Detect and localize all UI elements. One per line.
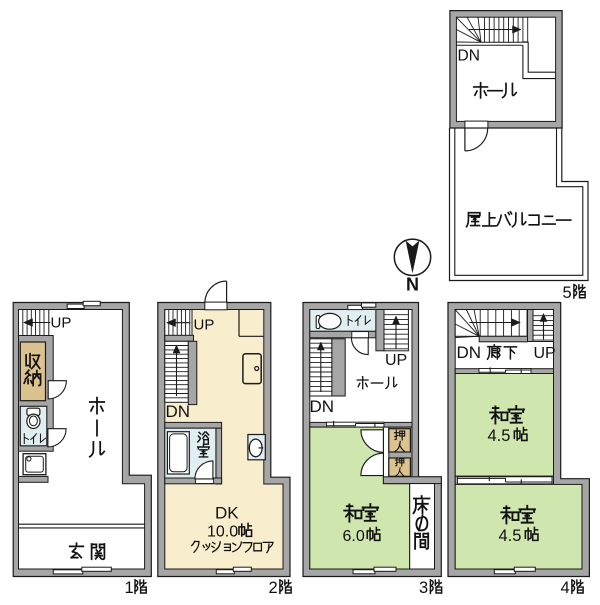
svg-text:DN: DN bbox=[457, 343, 482, 362]
svg-text:DN: DN bbox=[310, 397, 335, 416]
svg-text:4: 4 bbox=[561, 579, 570, 597]
svg-text:5: 5 bbox=[563, 284, 572, 302]
svg-text:10.0: 10.0 bbox=[207, 524, 238, 541]
svg-text:DN: DN bbox=[458, 48, 480, 65]
svg-text:UP: UP bbox=[194, 317, 215, 334]
svg-text:UP: UP bbox=[534, 345, 556, 362]
svg-text:4.5: 4.5 bbox=[499, 527, 522, 545]
svg-text:1: 1 bbox=[125, 579, 134, 597]
svg-text:DK: DK bbox=[215, 504, 239, 523]
svg-text:3: 3 bbox=[419, 579, 428, 597]
svg-text:6.0: 6.0 bbox=[343, 528, 365, 545]
svg-text:UP: UP bbox=[385, 352, 407, 369]
svg-text:N: N bbox=[406, 275, 419, 295]
svg-text:4.5: 4.5 bbox=[488, 427, 511, 445]
svg-text:2: 2 bbox=[269, 579, 278, 597]
svg-text:DN: DN bbox=[166, 402, 191, 421]
svg-text:UP: UP bbox=[51, 315, 72, 332]
